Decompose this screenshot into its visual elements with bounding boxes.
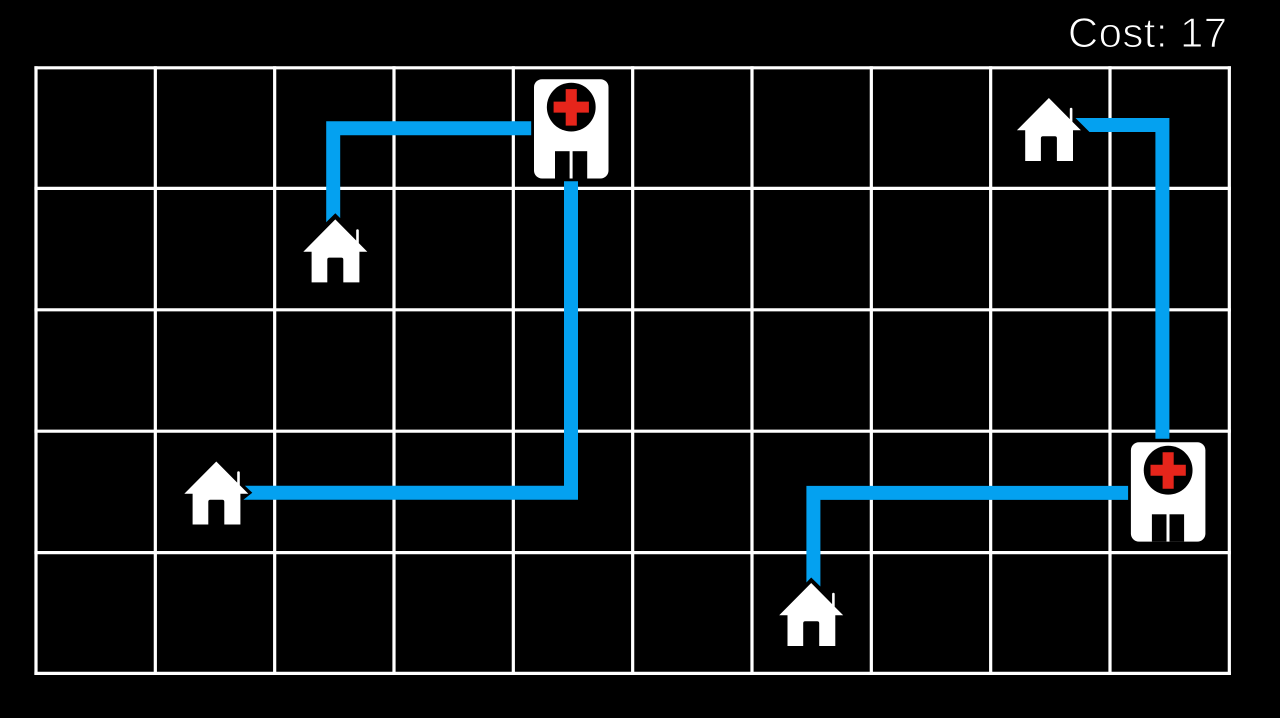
svg-text:Cost: 17: Cost: 17 [1068,9,1228,56]
